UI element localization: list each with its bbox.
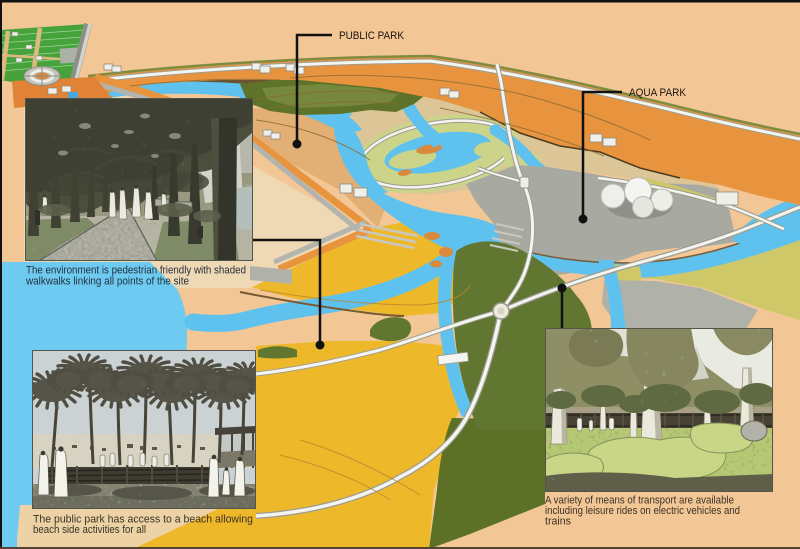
- svg-text:including leisure rides on ele: including leisure rides on electric vehi…: [545, 505, 740, 517]
- svg-text:PUBLIC PARK: PUBLIC PARK: [339, 30, 405, 42]
- svg-text:walkwalks linking all points o: walkwalks linking all points of the site: [25, 276, 189, 288]
- svg-text:AQUA PARK: AQUA PARK: [629, 87, 687, 99]
- svg-text:trains: trains: [545, 516, 571, 528]
- svg-text:beach side activities for all: beach side activities for all: [33, 524, 146, 536]
